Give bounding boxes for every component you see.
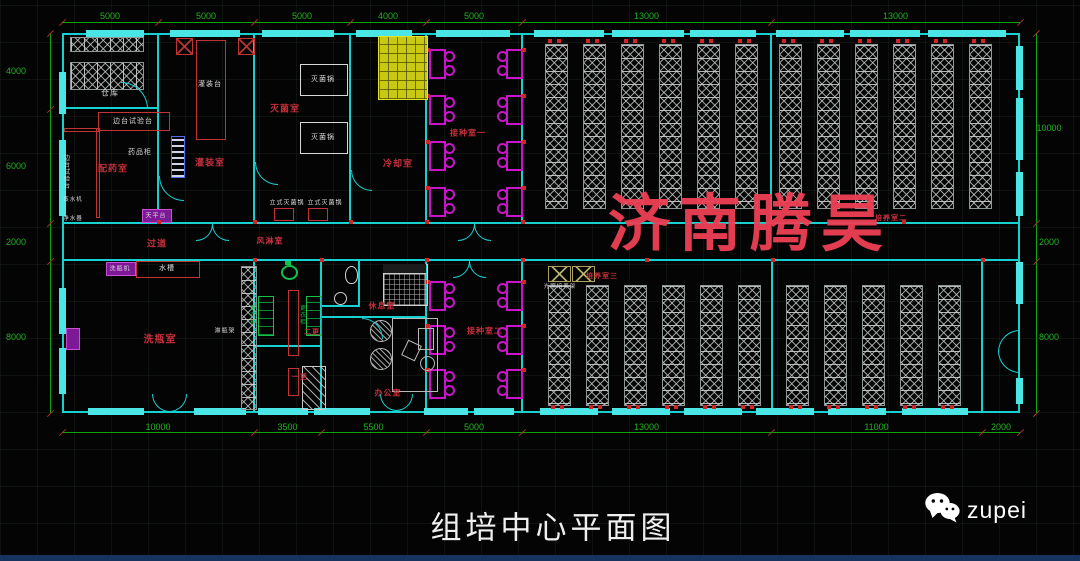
window-top — [850, 30, 920, 37]
dim-line-bottom — [62, 432, 1020, 433]
label-yigeng: 一更 — [292, 372, 308, 382]
window-bottom — [684, 408, 742, 415]
culture-rack — [779, 44, 802, 209]
clean-bench-part — [522, 280, 526, 284]
dim-label: 2000 — [6, 237, 26, 247]
red-dot — [709, 39, 713, 43]
door-arc — [469, 261, 486, 278]
brand-badge: zupei — [924, 492, 1027, 528]
window-top — [776, 30, 844, 37]
clean-bench-part — [522, 94, 526, 98]
clean-bench-part — [426, 140, 430, 144]
door-arc — [255, 162, 278, 185]
brand-name: zupei — [967, 497, 1027, 524]
red-dot — [941, 405, 945, 409]
dim-label: 10000 — [145, 422, 170, 432]
red-dot — [912, 405, 916, 409]
label-miejunshi: 灭菌室 — [270, 102, 300, 115]
red-dot — [798, 405, 802, 409]
window-top — [690, 30, 756, 37]
clean-bench-part — [506, 325, 523, 355]
red-dot — [858, 39, 862, 43]
window-bottom — [902, 408, 968, 415]
red-dot — [836, 405, 840, 409]
label-xiuxishi: 休息室 — [369, 301, 396, 312]
clean-bench-part — [522, 368, 526, 372]
clean-bench-part — [506, 141, 523, 171]
bottle-rack — [241, 266, 257, 410]
red-dot — [981, 39, 985, 43]
red-dot — [560, 405, 564, 409]
red-dot — [253, 220, 257, 224]
culture-rack — [893, 44, 916, 209]
dim-label: 5000 — [464, 11, 484, 21]
dim-label: 5500 — [363, 422, 383, 432]
wall-segment — [253, 33, 255, 224]
label-jingshuiji: 净水器 — [63, 214, 83, 222]
dim-label: 5000 — [100, 11, 120, 21]
clean-bench — [429, 140, 455, 170]
label-jiezhong2: 接种室二 — [467, 326, 503, 337]
wechat-icon — [924, 492, 960, 528]
culture-rack — [824, 285, 847, 406]
label-xipingshi: 洗瓶室 — [144, 331, 177, 346]
label-xipingji: 洗瓶机 — [109, 264, 130, 273]
label-yaopingui: 药品柜 — [128, 147, 152, 157]
door-arc — [212, 224, 229, 241]
red-dot — [829, 39, 833, 43]
window-right — [1016, 46, 1023, 90]
red-dot — [551, 405, 555, 409]
clean-bench — [497, 94, 523, 124]
sink-round — [334, 292, 347, 305]
door-arc — [453, 261, 470, 278]
culture-rack — [659, 44, 682, 209]
dim-label: 4000 — [6, 66, 26, 76]
red-dot — [934, 39, 938, 43]
label-gengyigui: 更衣柜 — [298, 305, 307, 326]
clean-bench — [497, 186, 523, 216]
culture-rack — [817, 44, 840, 209]
red-dot — [521, 220, 525, 224]
label-peiyaoshi: 配药室 — [98, 162, 128, 175]
clean-bench — [429, 94, 455, 124]
door-arc — [169, 394, 187, 412]
window-left — [59, 348, 66, 394]
autoclave-base — [274, 208, 294, 221]
red-dot — [703, 405, 707, 409]
red-dot — [627, 405, 631, 409]
red-dot — [738, 39, 742, 43]
window-right — [1016, 262, 1023, 304]
clean-bench — [429, 280, 455, 310]
label-guangzhao: 光照培养架 — [544, 282, 577, 290]
culture-rack — [862, 285, 885, 406]
red-dot — [741, 405, 745, 409]
red-dot — [589, 405, 593, 409]
label-fenglinshi: 风淋室 — [257, 236, 284, 247]
bed-headboard — [383, 264, 426, 274]
window-top — [86, 30, 144, 37]
wall-bench-line — [64, 128, 100, 132]
red-dot — [425, 258, 429, 262]
fixture-x-box — [176, 38, 193, 55]
wall-segment — [253, 345, 320, 347]
label-lishimiejunguo: 立式灭菌锅 — [269, 198, 304, 207]
dim-label: 6000 — [6, 161, 26, 171]
clean-bench-part — [522, 324, 526, 328]
door-arc — [351, 170, 372, 191]
door-arc — [458, 224, 475, 241]
window-top — [170, 30, 240, 37]
red-dot — [349, 220, 353, 224]
window-bottom — [194, 408, 246, 415]
dim-label: 2000 — [991, 422, 1011, 432]
label-tianpingtai: 天平台 — [145, 211, 166, 220]
culture-rack — [969, 44, 992, 209]
red-dot — [700, 39, 704, 43]
window-bottom — [424, 408, 468, 415]
clean-bench-part — [522, 48, 526, 52]
red-dot — [598, 405, 602, 409]
dim-label: 13000 — [634, 11, 659, 21]
window-right — [1016, 98, 1023, 160]
culture-rack — [700, 285, 723, 406]
culture-rack — [624, 285, 647, 406]
dim-line-top — [62, 22, 1020, 23]
window-bottom — [474, 408, 514, 415]
culture-rack — [586, 285, 609, 406]
toilet-green — [281, 265, 298, 280]
fixture-x-box — [238, 38, 255, 55]
culture-rack — [662, 285, 685, 406]
label-lishimiejunguo: 立式灭菌锅 — [307, 198, 342, 207]
dim-label: 2000 — [1039, 237, 1059, 247]
dim-label: 4000 — [378, 11, 398, 21]
culture-rack — [938, 285, 961, 406]
clean-bench-part — [506, 49, 523, 79]
red-dot — [624, 39, 628, 43]
red-dot — [896, 39, 900, 43]
clean-bench-part — [506, 187, 523, 217]
red-dot — [782, 39, 786, 43]
clean-bench — [497, 48, 523, 78]
red-dot — [674, 405, 678, 409]
red-dot — [586, 39, 590, 43]
red-dot — [747, 39, 751, 43]
window-bottom — [88, 408, 144, 415]
wall-segment — [358, 261, 360, 307]
dim-label: 5000 — [464, 422, 484, 432]
autoclave-base — [308, 208, 328, 221]
clean-bench — [429, 186, 455, 216]
wall-segment — [62, 259, 1020, 261]
window-top — [262, 30, 334, 37]
label-biantai: 边台试验台 — [62, 155, 71, 190]
red-dot — [425, 220, 429, 224]
red-dot — [157, 220, 161, 224]
washroom-fixture — [66, 328, 80, 350]
red-dot — [253, 258, 257, 262]
wall-segment — [771, 261, 773, 413]
dim-label: 8000 — [1039, 332, 1059, 342]
dim-tick — [47, 410, 54, 417]
window-top — [534, 30, 604, 37]
label-gengyigui: 更衣柜 — [248, 305, 257, 326]
filling-bench-outline — [196, 40, 226, 140]
door-arc — [159, 176, 184, 201]
dim-tick — [1033, 410, 1040, 417]
bottom-accent-bar — [0, 555, 1080, 561]
label-jiezhong1: 接种室一 — [450, 128, 486, 139]
window-right — [1016, 378, 1023, 404]
red-dot — [521, 258, 525, 262]
locker-cabinet — [258, 296, 274, 336]
dim-tick — [1017, 429, 1024, 436]
red-dot — [665, 405, 669, 409]
label-bangongshi: 办公室 — [375, 388, 402, 399]
red-dot — [750, 405, 754, 409]
red-dot — [867, 39, 871, 43]
culture-rack — [548, 285, 571, 406]
window-bottom — [258, 408, 308, 415]
culture-rack — [855, 44, 878, 209]
red-dot — [791, 39, 795, 43]
dim-label: 5000 — [292, 11, 312, 21]
wall-segment — [349, 33, 351, 224]
dim-label: 8000 — [6, 332, 26, 342]
red-dot — [789, 405, 793, 409]
door-arc — [196, 224, 213, 241]
door-arc — [998, 351, 1020, 373]
label-peiyang3: 培养室三 — [586, 271, 618, 281]
window-left — [59, 288, 66, 334]
label-zhengshuiji: 蒸水机 — [63, 195, 83, 203]
window-bottom — [612, 408, 670, 415]
dim-tick — [1017, 19, 1024, 26]
culture-rack — [583, 44, 606, 209]
dim-label: 5000 — [196, 11, 216, 21]
storage-rack — [70, 37, 144, 52]
red-dot — [595, 39, 599, 43]
culture-rack — [931, 44, 954, 209]
clean-bench-part — [426, 186, 430, 190]
red-dot — [320, 258, 324, 262]
red-dot — [671, 39, 675, 43]
clean-bench-part — [506, 281, 523, 311]
red-dot — [557, 39, 561, 43]
window-top — [928, 30, 1006, 37]
red-dot — [548, 39, 552, 43]
label-linpingjia: 淋瓶架 — [214, 326, 235, 335]
stool — [420, 356, 435, 371]
plant-pot — [370, 348, 392, 370]
window-left — [59, 72, 66, 114]
window-top — [612, 30, 684, 37]
clean-bench-part — [506, 95, 523, 125]
door-arc — [152, 394, 170, 412]
label-ergeng: 二更 — [304, 327, 320, 337]
cad-floorplan-screenshot: 5000500050004000500013000130001000035005… — [0, 0, 1080, 561]
dim-label: 13000 — [634, 422, 659, 432]
dim-label: 11000 — [864, 422, 888, 432]
clean-bench — [497, 140, 523, 170]
label-guodao: 过道 — [147, 237, 167, 250]
red-dot — [972, 39, 976, 43]
red-dot — [950, 405, 954, 409]
window-top — [436, 30, 510, 37]
wall-segment — [320, 305, 360, 307]
culture-rack — [621, 44, 644, 209]
toilet-white — [345, 266, 358, 284]
culture-rack — [738, 285, 761, 406]
red-dot — [827, 405, 831, 409]
window-bottom — [828, 408, 886, 415]
page-title: 组培中心平面图 — [431, 503, 676, 548]
door-arc — [998, 330, 1020, 352]
clean-bench-part — [522, 186, 526, 190]
window-bottom — [756, 408, 814, 415]
red-dot — [662, 39, 666, 43]
light-culture-rack — [548, 266, 571, 282]
label-shuicao: 水槽 — [159, 263, 175, 273]
label-biantai: 边台试验台 — [113, 116, 153, 126]
label-guanzhuangshi: 灌装室 — [195, 156, 225, 169]
dim-label: 10000 — [1036, 123, 1061, 133]
red-dot — [874, 405, 878, 409]
culture-rack — [786, 285, 809, 406]
red-dot — [636, 405, 640, 409]
clean-bench-part — [506, 369, 523, 399]
clean-bench-part — [522, 140, 526, 144]
window-bottom — [540, 408, 598, 415]
wall-segment — [981, 261, 983, 413]
label-cangku: 仓库 — [101, 88, 119, 99]
red-dot — [905, 39, 909, 43]
red-dot — [903, 405, 907, 409]
red-dot — [820, 39, 824, 43]
window-right — [1016, 172, 1023, 216]
label-miejunguo: 灭菌锅 — [311, 132, 335, 142]
watermark-text: 济南腾昊 — [608, 194, 892, 256]
clean-bench — [497, 280, 523, 310]
culture-rack — [697, 44, 720, 209]
label-lengqueshi: 冷却室 — [383, 157, 413, 170]
red-dot — [712, 405, 716, 409]
dim-label: 13000 — [883, 11, 908, 21]
culture-rack — [900, 285, 923, 406]
culture-rack — [735, 44, 758, 209]
culture-rack — [545, 44, 568, 209]
boiler-block — [378, 36, 428, 100]
label-guanzhuangtai: 灌装台 — [198, 79, 222, 89]
red-dot — [981, 258, 985, 262]
clean-bench — [429, 48, 455, 78]
label-miejunguo: 灭菌锅 — [311, 74, 335, 84]
toilet-tank — [285, 261, 291, 265]
red-dot — [943, 39, 947, 43]
clean-bench — [497, 368, 523, 398]
red-dot — [633, 39, 637, 43]
dim-label: 3500 — [277, 422, 297, 432]
medicine-cabinet — [171, 136, 185, 178]
red-dot — [865, 405, 869, 409]
door-arc — [474, 224, 491, 241]
